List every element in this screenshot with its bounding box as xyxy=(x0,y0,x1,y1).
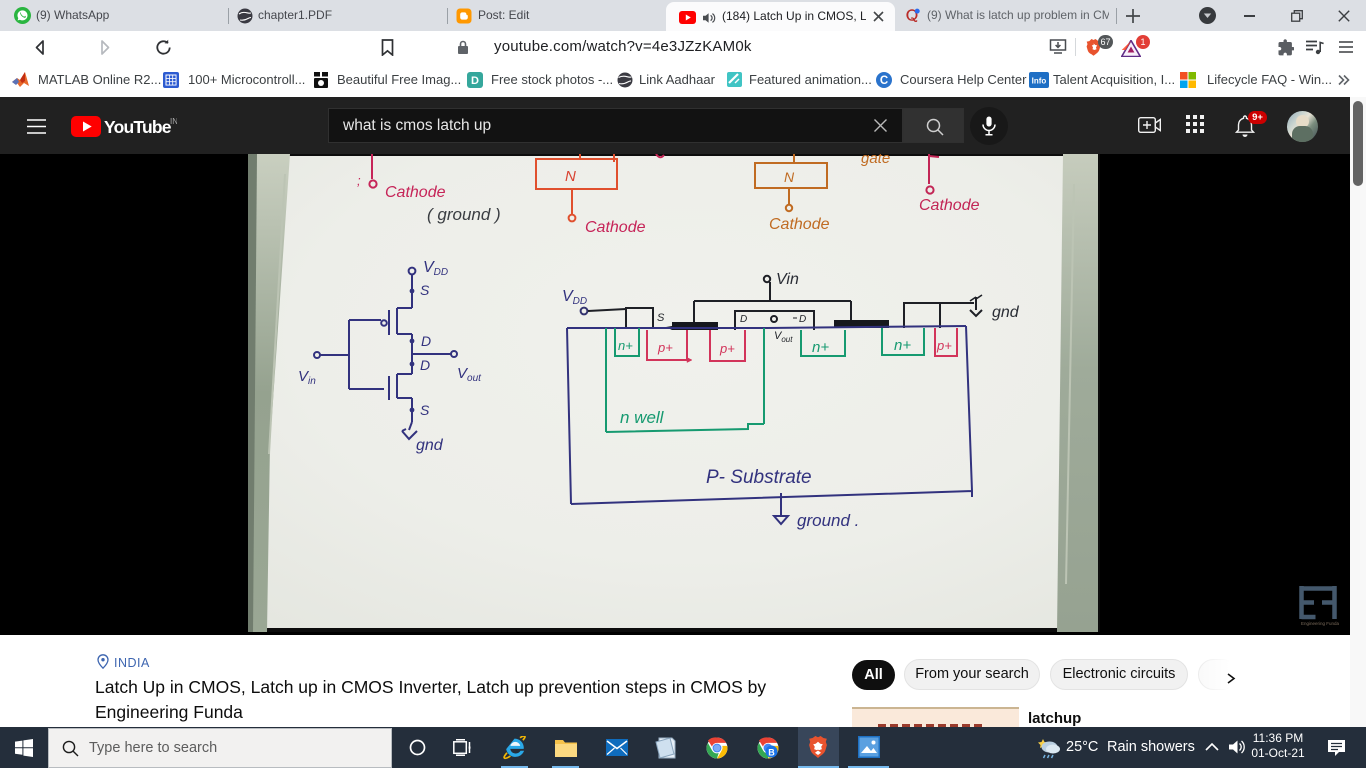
svg-text:D: D xyxy=(471,75,479,87)
svg-text:C: C xyxy=(880,75,888,87)
svg-text:S: S xyxy=(657,312,665,324)
svg-text:p+: p+ xyxy=(719,341,735,356)
svg-text:Cathode: Cathode xyxy=(919,197,980,214)
svg-text:gnd: gnd xyxy=(992,304,1020,321)
svg-text:gate: gate xyxy=(861,154,890,167)
svg-text:Vin: Vin xyxy=(776,271,799,288)
svg-text:S: S xyxy=(420,402,430,418)
svg-text:D: D xyxy=(740,314,747,325)
svg-text:;: ; xyxy=(357,173,361,188)
svg-text:gnd: gnd xyxy=(416,437,444,454)
svg-text:n+: n+ xyxy=(894,337,911,354)
svg-text:Cathode: Cathode xyxy=(385,184,446,201)
svg-text:N: N xyxy=(565,168,576,185)
svg-text:p+: p+ xyxy=(657,340,673,355)
svg-text:( ground ): ( ground ) xyxy=(427,205,501,224)
svg-text:Engineering Funda: Engineering Funda xyxy=(1301,621,1339,626)
svg-text:IN: IN xyxy=(170,117,177,126)
svg-text:n+: n+ xyxy=(618,338,633,353)
svg-text:D: D xyxy=(421,333,431,349)
svg-text:D: D xyxy=(420,357,430,373)
svg-text:Cathode: Cathode xyxy=(769,216,830,233)
svg-text:n well: n well xyxy=(620,408,665,427)
svg-text:N: N xyxy=(784,169,795,185)
svg-text:ground .: ground . xyxy=(797,511,859,530)
svg-text:S: S xyxy=(420,282,430,298)
svg-text:B: B xyxy=(768,748,775,758)
svg-text:YouTube: YouTube xyxy=(104,117,172,137)
svg-text:P- Substrate: P- Substrate xyxy=(706,467,812,488)
svg-text:n+: n+ xyxy=(812,339,829,356)
svg-text:Cathode: Cathode xyxy=(585,219,646,236)
svg-text:D: D xyxy=(799,314,806,325)
svg-text:p+: p+ xyxy=(936,338,952,353)
svg-text:Info: Info xyxy=(1032,77,1047,86)
